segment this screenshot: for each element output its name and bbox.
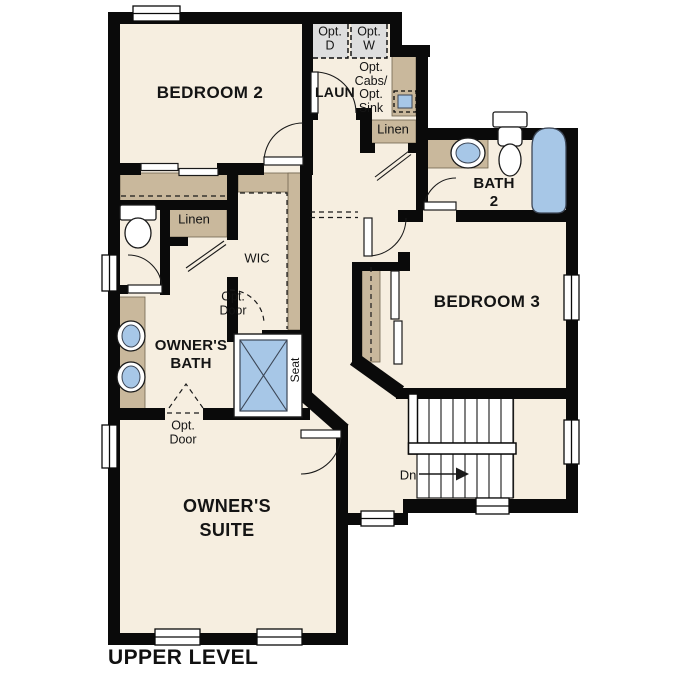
bedroom2-label: BEDROOM 2 (157, 83, 264, 103)
opt-washer-label: Opt. W (357, 26, 381, 53)
laundry-label: LAUN (315, 84, 355, 100)
bedroom3-label: BEDROOM 3 (434, 292, 541, 312)
opt-dryer-label: Opt. D (318, 26, 342, 53)
floor-plan: BEDROOM 2 BEDROOM 3 OWNER'S SUITE OWNER'… (0, 0, 687, 687)
window (564, 275, 579, 320)
window (102, 255, 117, 291)
stairs-dn-label: Dn (400, 468, 417, 483)
sink-icon (451, 138, 485, 168)
bedroom2-closet-shelf (120, 173, 228, 202)
bath2-label: BATH 2 (473, 175, 514, 211)
floor-plan-drawing (0, 0, 687, 687)
page-title: UPPER LEVEL (108, 646, 258, 670)
wic-shelf-right (288, 173, 301, 330)
linen-bath-label: Linen (178, 212, 210, 227)
opt-door-wic-label: Opt. Door (219, 291, 246, 318)
window (133, 6, 180, 21)
wic-label: WIC (244, 251, 269, 266)
owners-suite-label: OWNER'S SUITE (183, 494, 271, 542)
opt-door-bath-label: Opt. Door (169, 420, 196, 447)
window (564, 420, 579, 464)
window (361, 511, 394, 526)
owners-vanity (118, 297, 145, 412)
bathtub-icon (532, 128, 566, 213)
window (257, 629, 302, 645)
owners-bath-label: OWNER'S BATH (155, 337, 227, 373)
window (155, 629, 200, 645)
window (102, 425, 117, 468)
linen-hall-label: Linen (377, 122, 409, 137)
shower-seat-label: Seat (288, 358, 302, 383)
opt-cabs-sink-label: Opt. Cabs/ Opt. Sink (355, 61, 388, 115)
window (476, 498, 509, 514)
opt-sink-basin (398, 95, 412, 108)
